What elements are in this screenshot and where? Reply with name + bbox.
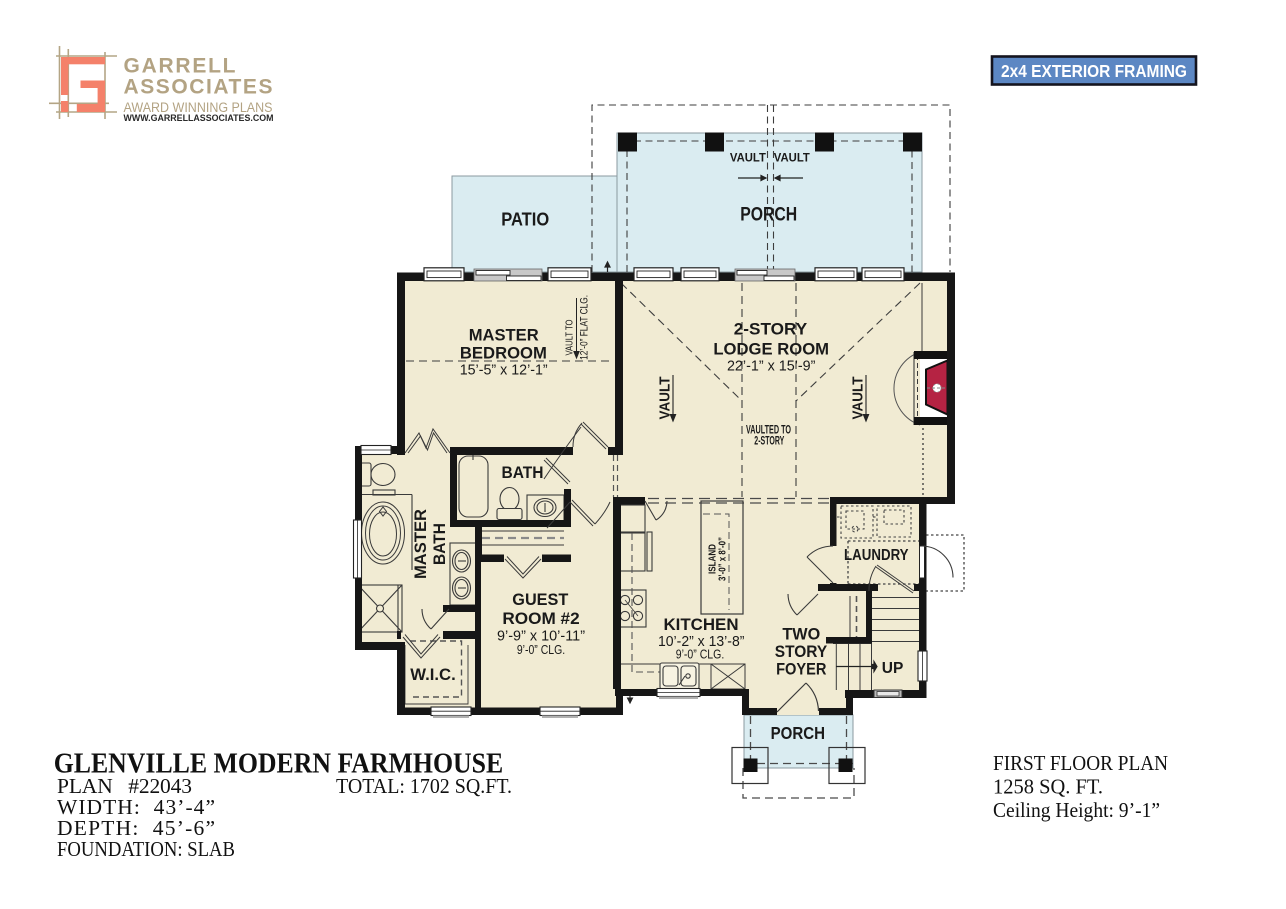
svg-text:VAULT: VAULT <box>730 153 766 165</box>
svg-text:BEDROOM: BEDROOM <box>460 344 547 363</box>
svg-text:ASSOCIATES: ASSOCIATES <box>124 76 273 99</box>
svg-text:MASTER: MASTER <box>411 509 430 579</box>
svg-text:VAULT TO: VAULT TO <box>564 320 576 356</box>
svg-text:9’-0” CLG.: 9’-0” CLG. <box>517 643 565 657</box>
svg-text:STORY: STORY <box>775 643 828 661</box>
svg-text:PORCH: PORCH <box>740 204 797 226</box>
svg-text:FOYER: FOYER <box>776 661 826 679</box>
svg-text:WWW.GARRELLASSOCIATES.COM: WWW.GARRELLASSOCIATES.COM <box>124 113 274 124</box>
svg-text:Ceiling Height: 9’-1”: Ceiling Height: 9’-1” <box>993 798 1160 822</box>
svg-text:FOUNDATION: SLAB: FOUNDATION: SLAB <box>57 837 235 861</box>
svg-text:VAULT: VAULT <box>849 377 866 420</box>
svg-text:UP: UP <box>882 660 904 677</box>
svg-text:BATH: BATH <box>430 523 449 565</box>
svg-text:PORCH: PORCH <box>771 723 825 743</box>
svg-text:FIRST FLOOR PLAN: FIRST FLOOR PLAN <box>993 751 1168 775</box>
svg-text:VAULT: VAULT <box>656 377 673 420</box>
svg-text:W.I.C.: W.I.C. <box>410 665 456 684</box>
svg-text:TWO: TWO <box>782 626 820 644</box>
svg-text:2-STORY: 2-STORY <box>754 435 784 447</box>
svg-text:GUEST: GUEST <box>512 590 569 609</box>
svg-text:2x4 EXTERIOR FRAMING: 2x4 EXTERIOR FRAMING <box>1001 61 1187 81</box>
svg-text:VAULT: VAULT <box>774 153 810 165</box>
svg-text:MASTER: MASTER <box>469 326 539 345</box>
svg-text:9’-0” CLG.: 9’-0” CLG. <box>676 648 725 662</box>
svg-text:ROOM #2: ROOM #2 <box>502 609 579 628</box>
svg-text:3’-0” x 8’-0”: 3’-0” x 8’-0” <box>717 537 729 581</box>
svg-text:15’-5” x 12’-1”: 15’-5” x 12’-1” <box>460 362 548 378</box>
svg-text:PATIO: PATIO <box>501 210 549 230</box>
svg-text:22’-1” x 15’-9”: 22’-1” x 15’-9” <box>727 359 816 375</box>
svg-text:TOTAL: 1702 SQ.FT.: TOTAL: 1702 SQ.FT. <box>336 774 512 798</box>
svg-text:2-STORY: 2-STORY <box>734 320 808 339</box>
svg-text:1258 SQ. FT.: 1258 SQ. FT. <box>993 775 1103 799</box>
svg-text:BATH: BATH <box>502 463 544 482</box>
svg-text:LAUNDRY: LAUNDRY <box>844 547 909 564</box>
svg-text:LODGE ROOM: LODGE ROOM <box>713 340 829 359</box>
svg-text:12’-0” FLAT CLG.: 12’-0” FLAT CLG. <box>579 295 591 360</box>
svg-text:KITCHEN: KITCHEN <box>663 615 738 634</box>
